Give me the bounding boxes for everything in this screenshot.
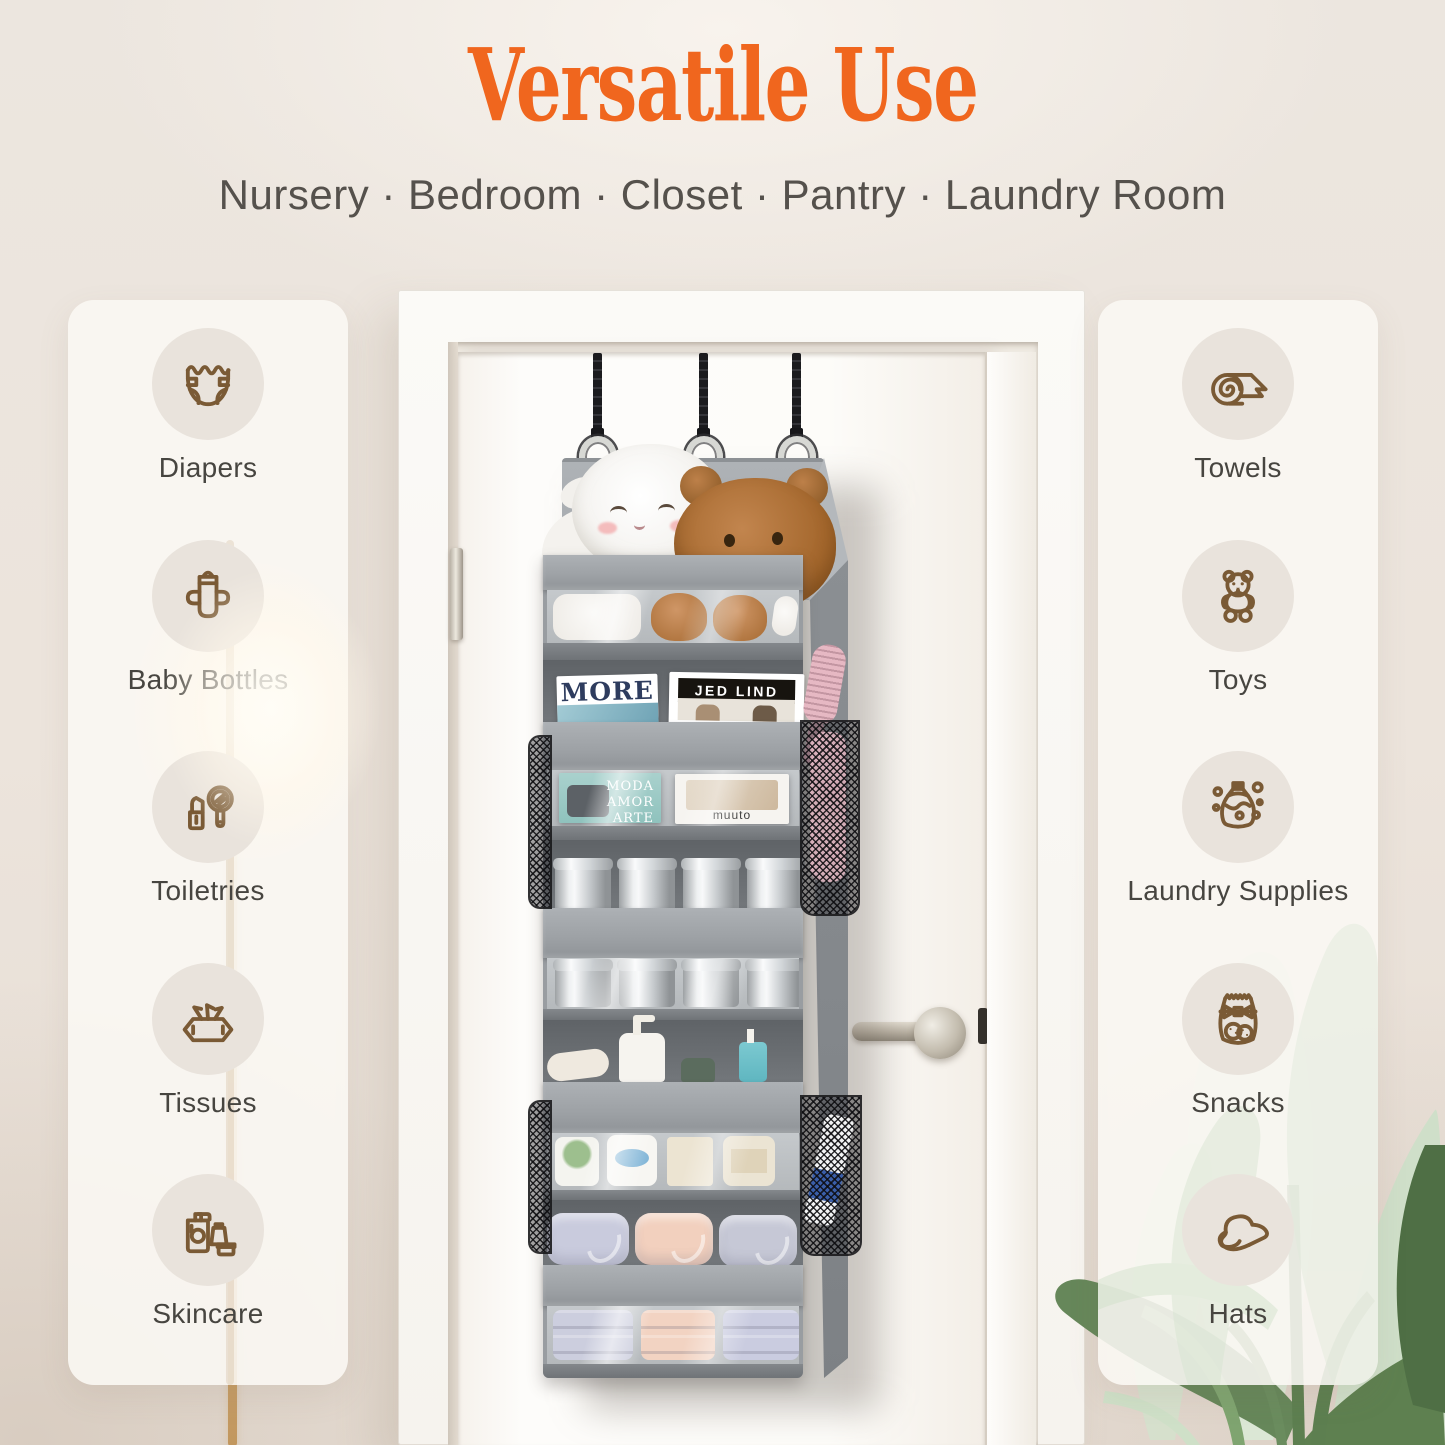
mesh-side-pocket xyxy=(800,720,860,916)
towel-roll xyxy=(547,1213,629,1265)
panel-item-label: Laundry Supplies xyxy=(1127,875,1348,907)
icon-circle xyxy=(152,751,264,863)
icon-circle xyxy=(1182,540,1294,652)
left-item-tissues: Tissues xyxy=(68,963,348,1175)
baby-bottle-icon xyxy=(174,562,242,630)
right-item-laundry-supplies: Laundry Supplies xyxy=(1098,751,1378,963)
panel-item-label: Snacks xyxy=(1191,1087,1285,1119)
right-feature-panel: TowelsToysLaundry SuppliesSnacksHats xyxy=(1098,300,1378,1385)
lamb-mouth xyxy=(634,520,645,530)
icon-circle xyxy=(1182,963,1294,1075)
panel-item-label: Toiletries xyxy=(151,875,264,907)
header: Versatile Use xyxy=(0,30,1445,140)
magazine-moda-title: MODA AMOR ARTE xyxy=(606,779,654,823)
left-item-baby-bottles: Baby Bottles xyxy=(68,540,348,752)
pocket-1-band xyxy=(543,555,803,590)
left-item-diapers: Diapers xyxy=(68,328,348,540)
teal-pump-bottle xyxy=(739,1042,767,1082)
teddy-eye xyxy=(724,534,735,547)
folded-towel xyxy=(723,1310,799,1360)
icon-circle xyxy=(152,540,264,652)
door-hinge xyxy=(450,548,463,640)
laundry-detergent-icon xyxy=(1204,773,1272,841)
aloe-tube xyxy=(555,1137,599,1186)
pocket-1-window xyxy=(547,590,799,643)
canister xyxy=(683,860,739,915)
right-item-snacks: Snacks xyxy=(1098,963,1378,1175)
folded-towel xyxy=(641,1310,715,1360)
hanging-strap xyxy=(699,353,708,435)
green-jar xyxy=(681,1058,715,1082)
product-infographic: MORE JED LIND MODA AMOR ARTE xyxy=(0,0,1445,1445)
left-item-toiletries: Toiletries xyxy=(68,751,348,963)
panel-item-label: Towels xyxy=(1194,452,1281,484)
book-jed-lind-photo xyxy=(678,698,794,722)
page-subtitle: Nursery · Bedroom · Closet · Pantry · La… xyxy=(0,170,1445,220)
lotion-pump-bottle xyxy=(619,1033,665,1082)
pocket-2-band xyxy=(543,722,803,770)
organizer-base xyxy=(543,1364,803,1378)
icon-circle xyxy=(152,328,264,440)
mesh-side-pocket xyxy=(528,735,552,909)
lamb-cheek xyxy=(598,522,617,534)
towel-roll xyxy=(719,1215,797,1267)
tissues-icon xyxy=(174,985,242,1053)
towel-icon xyxy=(1204,350,1272,418)
magazine-more: MORE xyxy=(556,674,658,727)
panel-item-label: Toys xyxy=(1209,664,1268,696)
right-panel-items: TowelsToysLaundry SuppliesSnacksHats xyxy=(1098,300,1378,1385)
panel-item-label: Baby Bottles xyxy=(128,664,289,696)
sun-hat-icon xyxy=(1204,1196,1272,1264)
brush-in-pocket xyxy=(810,732,846,882)
door-handle-rosette xyxy=(914,1007,966,1059)
mesh-side-pocket xyxy=(528,1100,552,1254)
icon-circle xyxy=(1182,751,1294,863)
door-hinge-gap xyxy=(448,342,458,1445)
left-feature-panel: DiapersBaby BottlesToiletriesTissuesSkin… xyxy=(68,300,348,1385)
canister xyxy=(619,860,675,915)
hanging-strap xyxy=(792,353,801,435)
cream-cup xyxy=(667,1137,713,1186)
teddy-eye xyxy=(772,532,783,545)
pocket-3-window xyxy=(547,958,799,1009)
diaper-icon xyxy=(174,350,242,418)
towel-roll xyxy=(635,1213,713,1265)
icon-circle xyxy=(1182,328,1294,440)
panel-item-label: Skincare xyxy=(152,1298,263,1330)
toiletries-icon xyxy=(174,773,242,841)
pocket-3-band xyxy=(543,908,803,958)
skincare-icon xyxy=(174,1196,242,1264)
icon-circle xyxy=(1182,1174,1294,1286)
lamb-eye xyxy=(610,506,627,520)
left-panel-items: DiapersBaby BottlesToiletriesTissuesSkin… xyxy=(68,300,348,1385)
shelf-edge xyxy=(543,643,803,660)
pocket-2-window: MODA AMOR ARTE muuto xyxy=(547,770,799,826)
canister xyxy=(555,860,611,915)
teddy-bear-icon xyxy=(1204,562,1272,630)
page-title: Versatile Use xyxy=(468,30,977,140)
snack-bag-icon xyxy=(1204,985,1272,1053)
spray-bottle xyxy=(803,1113,855,1227)
icon-circle xyxy=(152,1174,264,1286)
pocket-4-window xyxy=(547,1133,799,1190)
lamb-feet xyxy=(553,594,641,640)
right-item-toys: Toys xyxy=(1098,540,1378,752)
right-item-hats: Hats xyxy=(1098,1174,1378,1385)
pocket-5-window xyxy=(547,1306,799,1364)
panel-item-label: Tissues xyxy=(159,1087,257,1119)
book-jed-lind: JED LIND xyxy=(669,672,805,726)
book-muuto-title: muuto xyxy=(675,808,789,822)
magazine-moda: MODA AMOR ARTE xyxy=(559,773,661,823)
left-item-skincare: Skincare xyxy=(68,1174,348,1385)
mesh-side-pocket xyxy=(800,1095,862,1256)
canister xyxy=(747,860,803,915)
folded-towel xyxy=(553,1310,633,1360)
pocket-4-band xyxy=(543,1082,803,1133)
teddy-paw xyxy=(651,593,707,641)
right-item-towels: Towels xyxy=(1098,328,1378,540)
pocket-5-band xyxy=(543,1265,803,1306)
panel-item-label: Hats xyxy=(1209,1298,1268,1330)
icon-circle xyxy=(152,963,264,1075)
hanging-strap xyxy=(593,353,602,435)
panel-item-label: Diapers xyxy=(159,452,258,484)
teddy-paw xyxy=(713,595,767,641)
organizer-front: MORE JED LIND MODA AMOR ARTE xyxy=(543,555,803,1378)
book-muuto: muuto xyxy=(675,774,789,824)
over-door-organizer: MORE JED LIND MODA AMOR ARTE xyxy=(528,348,868,1410)
